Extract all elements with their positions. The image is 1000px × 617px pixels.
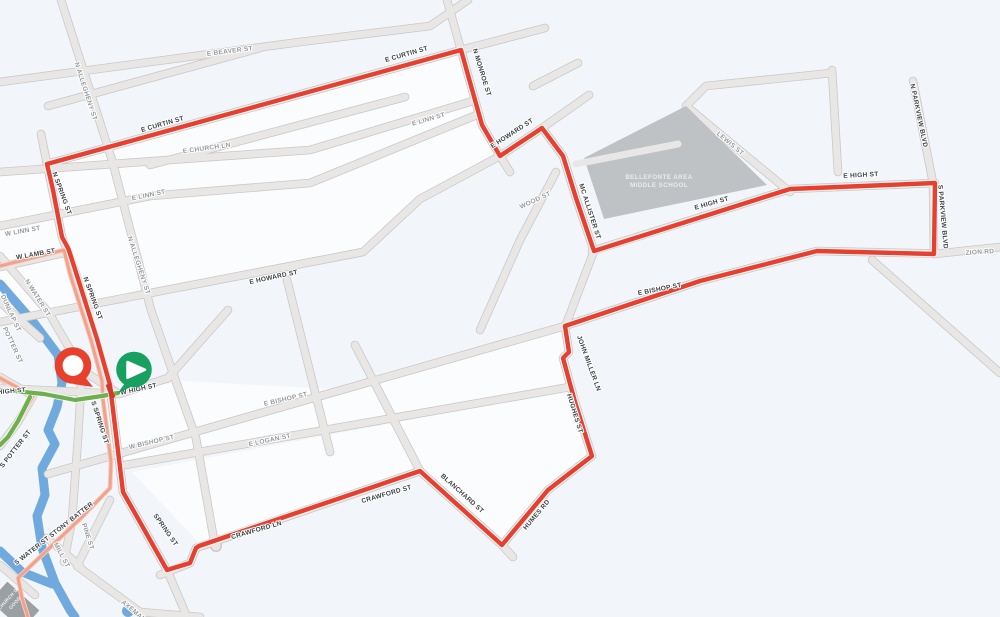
svg-text:BELLEFONTE AREA: BELLEFONTE AREA — [625, 174, 692, 181]
svg-text:MIDDLE SCHOOL: MIDDLE SCHOOL — [630, 182, 688, 189]
